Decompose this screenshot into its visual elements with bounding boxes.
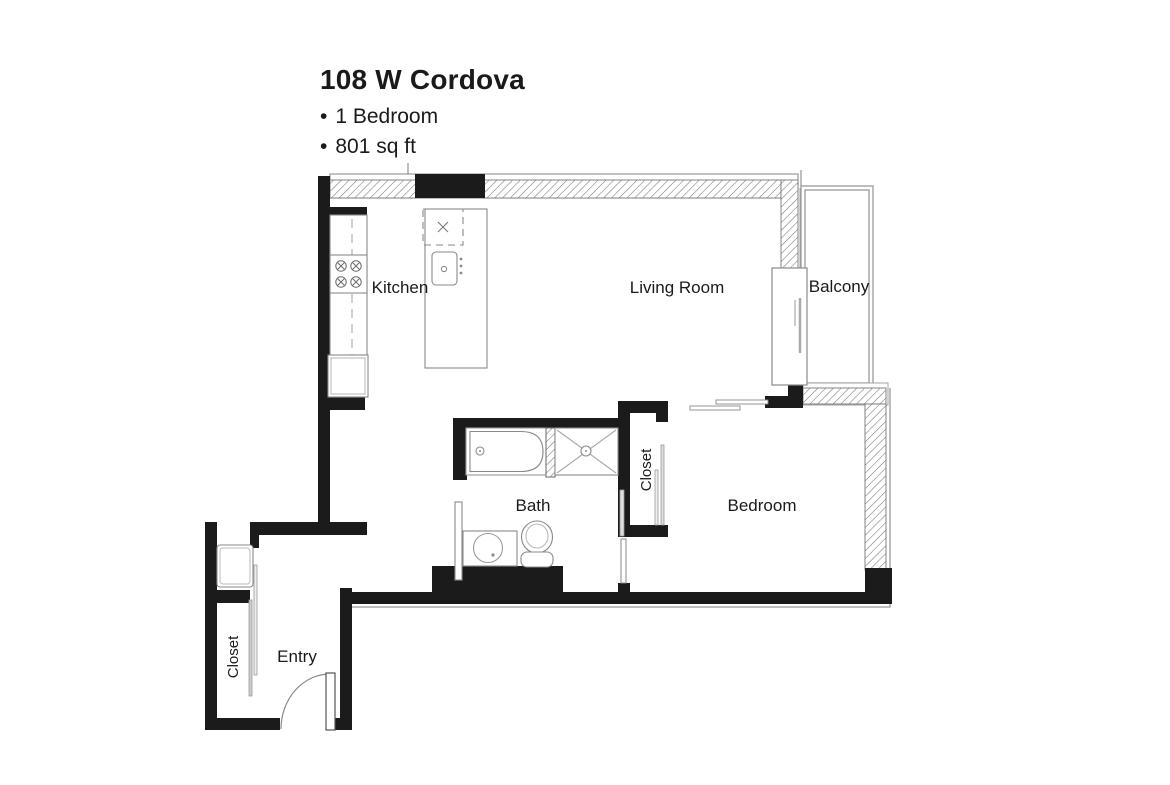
- bath-door-jamb-stub: [618, 583, 630, 594]
- entry-top-wall: [250, 522, 367, 535]
- vanity-drain: [491, 553, 494, 556]
- washer-unit: [217, 545, 253, 587]
- sliding-balcony-door: [772, 268, 807, 385]
- top-wall-solid-segment: [415, 174, 485, 198]
- bath-left-wall: [453, 418, 467, 480]
- faucet-dot: [460, 258, 463, 261]
- kitchen-label: Kitchen: [372, 278, 429, 297]
- closet-rod: [661, 445, 664, 525]
- living-room-label: Living Room: [630, 278, 725, 297]
- bedroom-door-panel: [716, 400, 768, 404]
- cooktop: [330, 255, 367, 293]
- entry-swing-door: [281, 673, 335, 730]
- kitchen-fixtures: [328, 209, 487, 397]
- bedroom-top-wall-hatch: [803, 388, 886, 404]
- tub-shower-divider: [546, 428, 555, 477]
- toilet: [521, 521, 553, 567]
- bedroom-label: Bedroom: [728, 496, 797, 515]
- entry-outer-left-wall: [205, 522, 217, 730]
- entry-closet-label: Closet: [225, 635, 242, 678]
- bedroom-door-jamb: [656, 411, 668, 422]
- bedroom-closet-bottom-stub: [628, 525, 668, 537]
- balcony-label: Balcony: [809, 277, 870, 296]
- entry-right-wall: [340, 588, 352, 730]
- faucet-dot: [460, 265, 463, 268]
- bedroom-corner-wall: [865, 568, 892, 604]
- floorplan-page: 108 W Cordova •1 Bedroom •801 sq ft: [0, 0, 1170, 785]
- sink-basin: [432, 252, 457, 285]
- entry-door-leaf: [326, 673, 335, 730]
- bath-plumbing-wall: [432, 566, 563, 594]
- bath-top-wall: [453, 418, 630, 428]
- kitchen-counter-bottom-stub: [320, 397, 365, 410]
- entry-closet-divider-wall: [205, 590, 250, 603]
- top-window-wall-hatch: [330, 180, 781, 198]
- bedroom-right-wall-hatch: [865, 404, 886, 570]
- bath-label: Bath: [516, 496, 551, 515]
- bedroom-door-panel: [690, 406, 740, 410]
- toilet-tank: [521, 552, 553, 567]
- bedroom-bath-door-leaf: [621, 539, 626, 583]
- bedroom-closet-label: Closet: [638, 448, 655, 491]
- entry-bottom-wall-left: [205, 718, 280, 730]
- bath-door-leaf: [455, 502, 462, 580]
- entry-closet-slider-line: [254, 565, 257, 675]
- vanity-sink: [463, 531, 517, 566]
- vanity-counter: [463, 531, 517, 566]
- entry-top-wall-step: [250, 522, 259, 548]
- toilet-bowl-inner: [526, 524, 548, 548]
- sliding-door-panel: [772, 268, 807, 385]
- floorplan-drawing: Kitchen Living Room Balcony Bath Bedroom…: [0, 0, 1170, 785]
- shower-drain-dot: [585, 450, 587, 452]
- closet-shelf-line: [655, 470, 658, 525]
- kitchen-island: [425, 209, 487, 368]
- refrigerator-inner: [331, 358, 365, 394]
- bathtub: [470, 432, 543, 472]
- shower-stall: [555, 428, 618, 475]
- closet-slider-line: [620, 490, 624, 536]
- door-swing-arc: [281, 674, 330, 729]
- faucet-dot: [460, 272, 463, 275]
- entry-label: Entry: [277, 647, 317, 666]
- tub-drain-dot: [479, 450, 481, 452]
- balcony-corner-wall-horizontal: [765, 396, 803, 408]
- entry-closet-rod: [249, 600, 252, 696]
